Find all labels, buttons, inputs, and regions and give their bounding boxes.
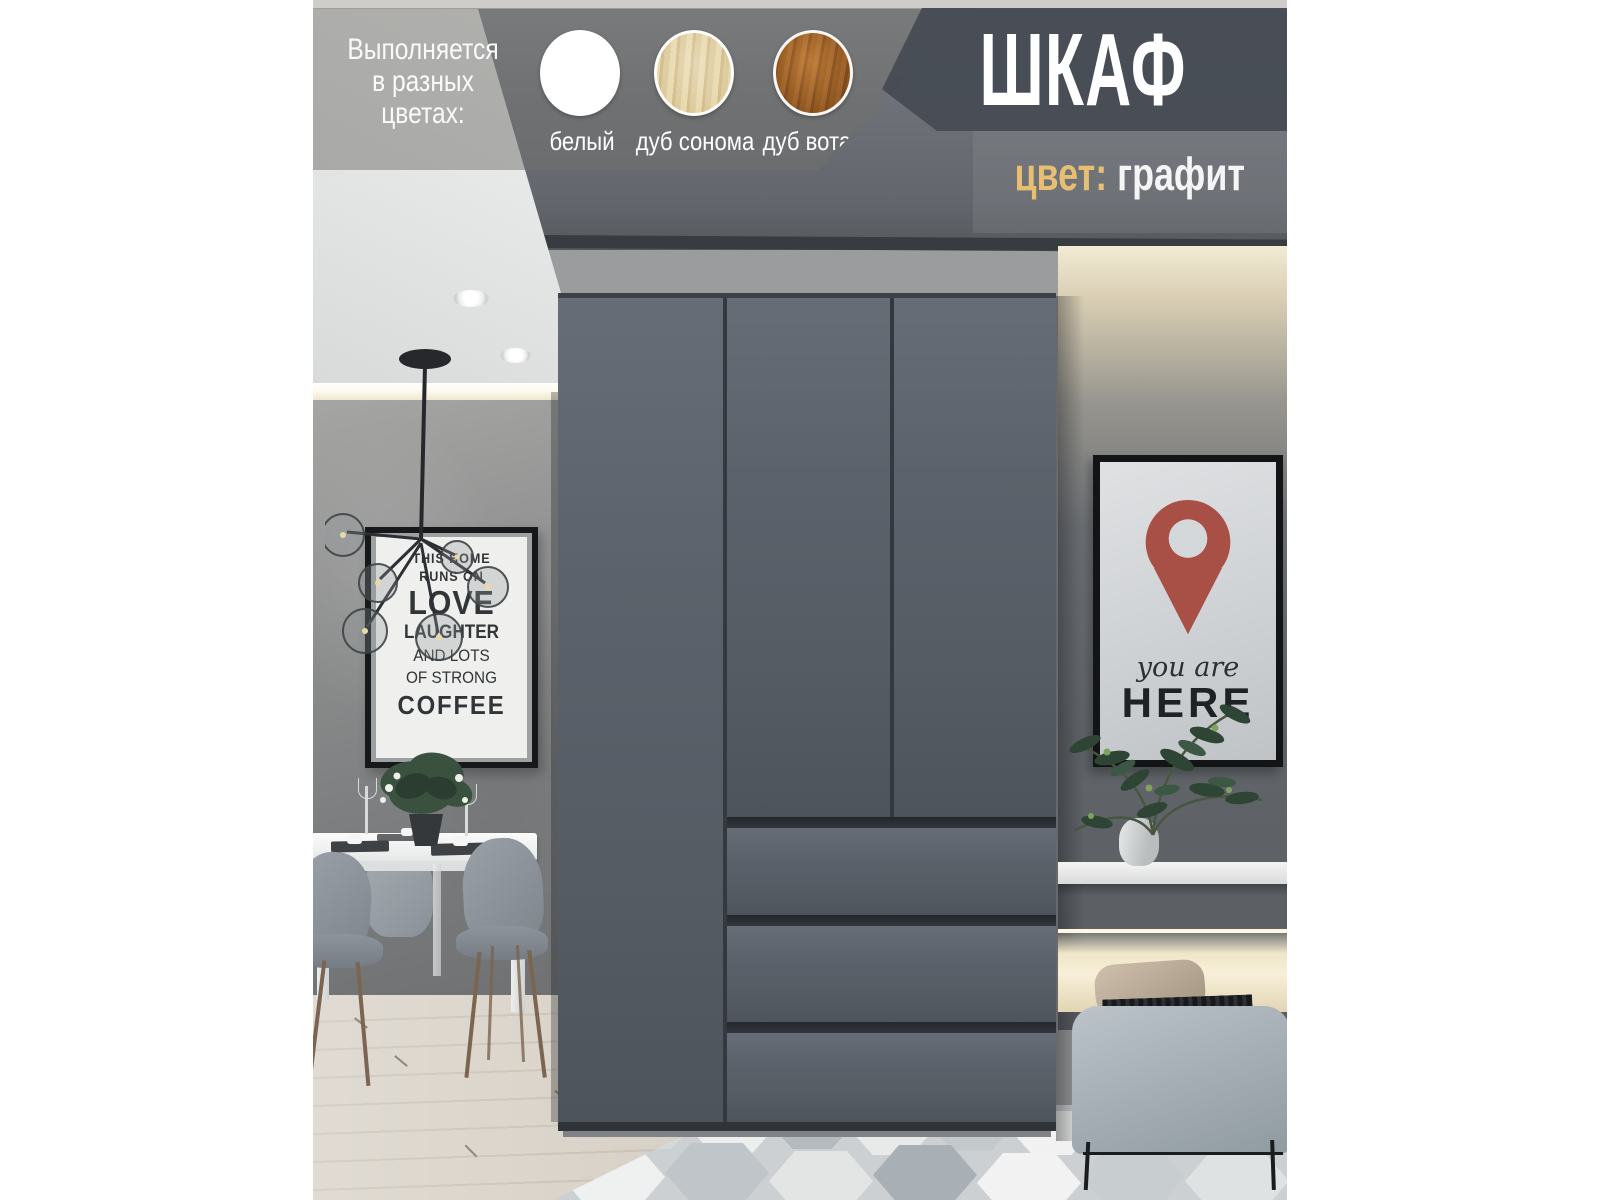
- heading-line: в разных: [339, 66, 506, 98]
- dining-chair-seat: [456, 926, 548, 960]
- swatch-wotan-oak: [773, 30, 853, 116]
- wardrobe-plinth: [563, 1131, 1051, 1137]
- product-title: ШКАФ: [980, 11, 1187, 129]
- wardrobe-recess-handle: [727, 817, 1056, 828]
- wardrobe-recess-handle: [727, 915, 1056, 926]
- map-pin-icon: [1142, 498, 1234, 650]
- swatch-label-sonoma: дуб сонома: [627, 126, 763, 157]
- console-shadow: [1058, 884, 1287, 896]
- swatch-white: [540, 30, 620, 116]
- ceiling-spotlight: [453, 290, 489, 307]
- product-photo: THIS HOME RUNS ON LOVE LAUGHTER AND LOTS…: [313, 0, 1287, 1200]
- table-plant: [361, 742, 491, 850]
- photo-top-edge: [313, 0, 1287, 9]
- color-spec: цвет: графит: [973, 146, 1287, 202]
- wardrobe-wall-shadow: [551, 392, 558, 1122]
- coffee-poster-line: COFFEE: [382, 689, 521, 721]
- color-spec-label: цвет:: [1015, 148, 1108, 200]
- glass-chandelier: [325, 343, 530, 688]
- bench-led-line: [1058, 929, 1287, 933]
- fabric-bench: [1072, 1006, 1287, 1154]
- color-spec-value: графит: [1117, 148, 1245, 200]
- product-card: THIS HOME RUNS ON LOVE LAUGHTER AND LOTS…: [0, 0, 1600, 1200]
- wardrobe-left-door: [558, 296, 723, 1122]
- wardrobe-drawer-1: [727, 828, 1056, 915]
- wardrobe-top-edge: [558, 293, 1056, 298]
- wardrobe-recess-handle: [727, 1022, 1056, 1033]
- swatch-sonoma-oak: [654, 30, 734, 116]
- wardrobe-middle-door: [727, 296, 890, 817]
- heading-line: цветах:: [339, 98, 506, 130]
- color-options-heading: Выполняется в разных цветах:: [339, 34, 506, 130]
- olive-plant: [1057, 640, 1287, 875]
- niche-led-glow: [511, 247, 1058, 297]
- wardrobe-right-door: [894, 296, 1056, 817]
- table-leg: [433, 864, 441, 976]
- wardrobe-base-shadow: [558, 1122, 1056, 1131]
- wardrobe-drawer-3: [727, 1033, 1056, 1122]
- wardrobe-drawer-2: [727, 926, 1056, 1022]
- cup: [347, 834, 362, 844]
- title-banner: ШКАФ: [880, 8, 1287, 131]
- bench-frame-bar: [1083, 1152, 1283, 1155]
- heading-line: Выполняется: [339, 34, 506, 66]
